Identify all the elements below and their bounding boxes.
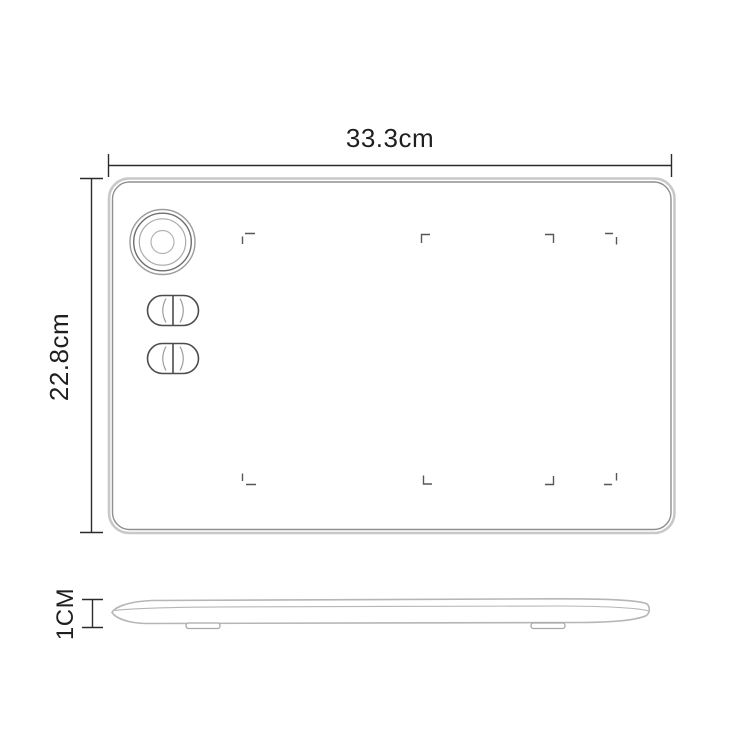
tablet-side-view (112, 599, 649, 629)
width-dimension-line (108, 154, 672, 177)
foot-right (531, 623, 565, 629)
side-profile-outline (112, 599, 649, 624)
thickness-dimension-label: 1CM (52, 564, 80, 664)
side-top-surface-edge (115, 606, 649, 611)
height-dimension-label: 22.8cm (44, 277, 74, 437)
dimension-diagram: 33.3cm 22.8cm 1CM (0, 0, 750, 750)
width-dimension-label: 33.3cm (240, 123, 540, 154)
foot-left (186, 623, 220, 629)
diagram-linework (0, 0, 750, 750)
height-dimension-line (80, 178, 103, 533)
thickness-dimension-line (82, 599, 103, 628)
